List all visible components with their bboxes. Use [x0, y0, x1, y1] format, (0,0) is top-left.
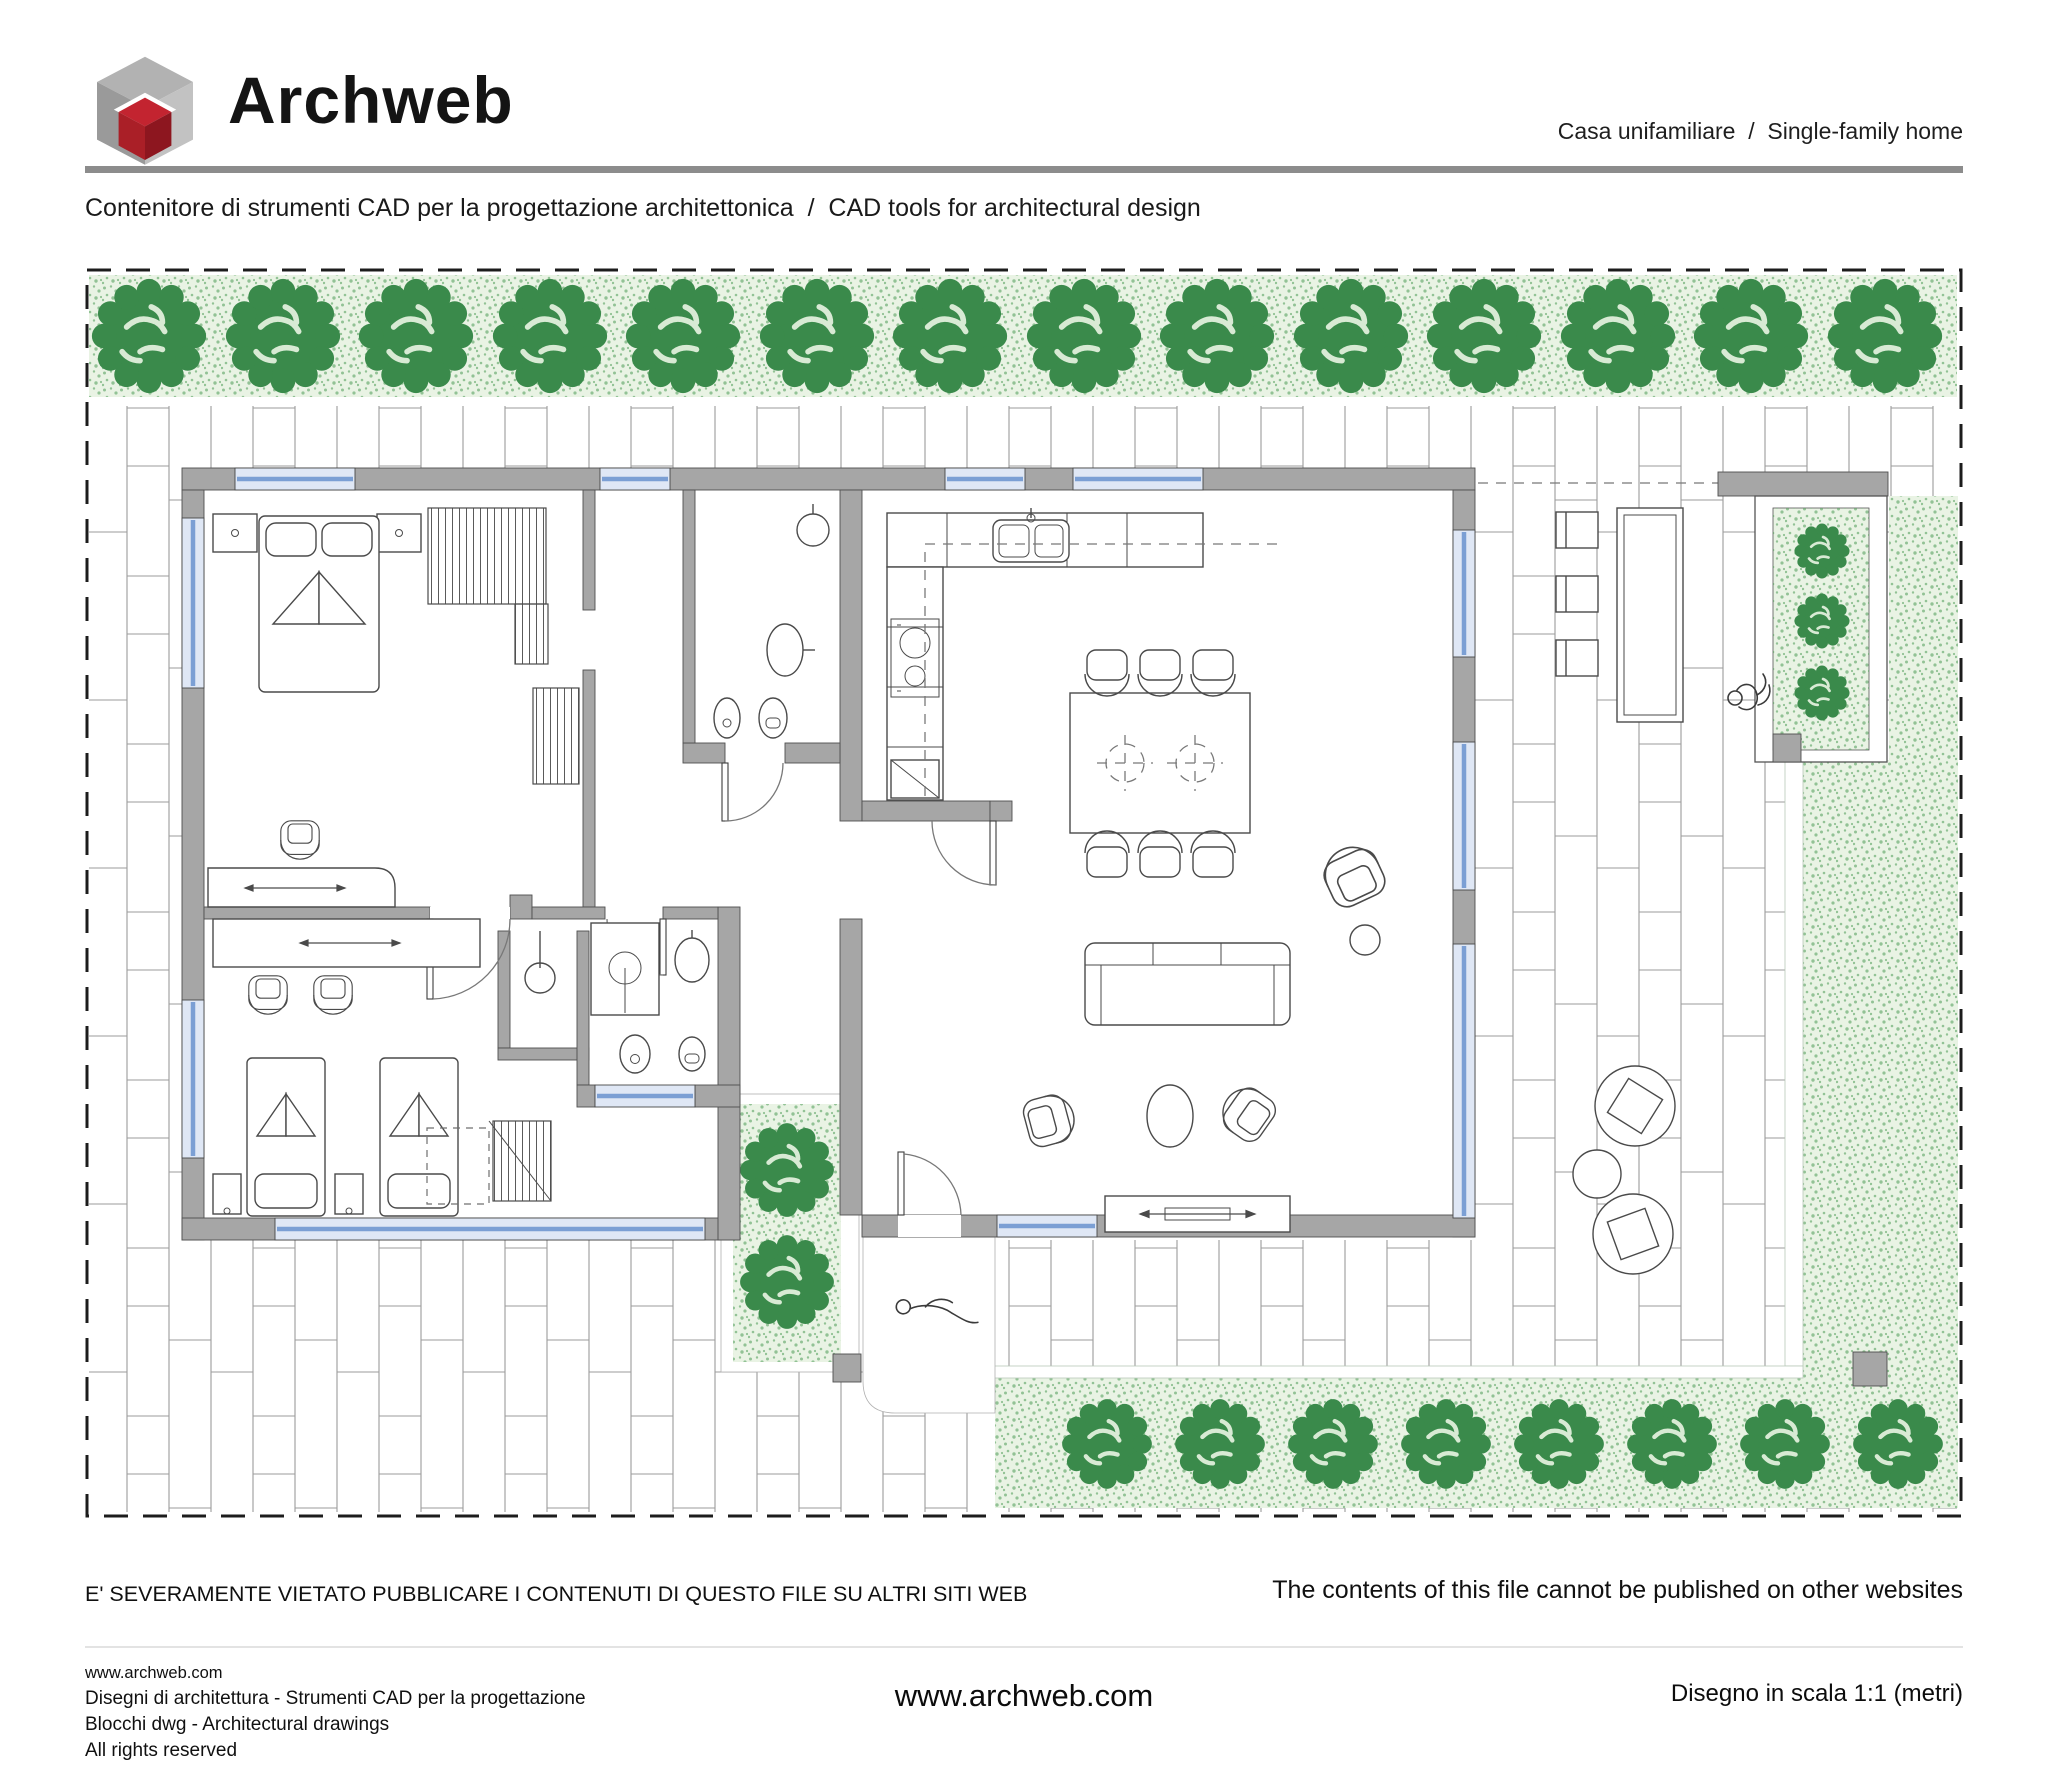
tagline: Contenitore di strumenti CAD per la prog… [85, 194, 1201, 223]
footer-line3: Blocchi dwg - Architectural drawings [85, 1712, 586, 1738]
warning-italian: E' SEVERAMENTE VIETATO PUBBLICARE I CONT… [85, 1582, 1027, 1607]
footer-scale-note: Disegno in scala 1:1 (metri) [1671, 1680, 1963, 1708]
archweb-logo-icon [85, 52, 205, 172]
header-rule [85, 166, 1963, 173]
archweb-plan-page: Archweb Casa unifamiliare / Single-famil… [0, 0, 2048, 1784]
logo-wordmark: Archweb [228, 62, 514, 138]
pouf [1147, 1085, 1193, 1147]
footer-divider [85, 1646, 1963, 1648]
garden-pillar [1853, 1352, 1887, 1386]
entry-walkway [863, 1237, 995, 1413]
category-label: Casa unifamiliare / Single-family home [1558, 118, 1963, 145]
floor-plan-drawing [85, 268, 1963, 1518]
wardrobe-hatch [428, 508, 546, 604]
sofa [1085, 943, 1290, 1025]
footer-line4: All rights reserved [85, 1738, 586, 1764]
kitchen-sink [993, 520, 1069, 562]
warning-english: The contents of this file cannot be publ… [1272, 1576, 1963, 1605]
